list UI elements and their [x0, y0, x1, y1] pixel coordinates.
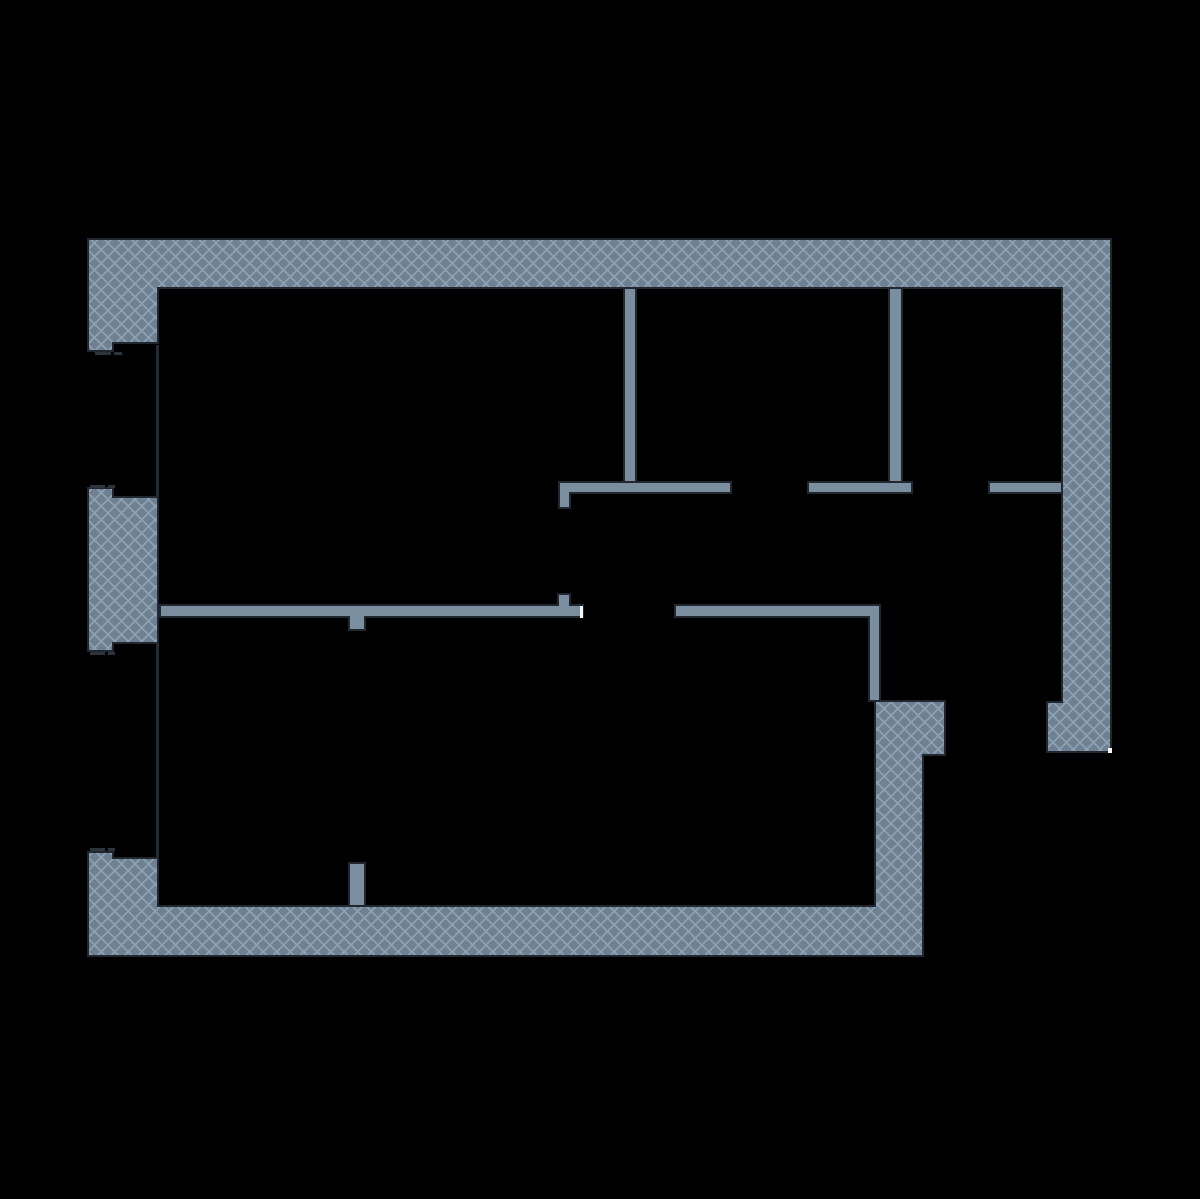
- floor-plan-svg: [0, 0, 1200, 1199]
- window-face-upper: [156, 345, 159, 497]
- window-dash: [108, 485, 115, 488]
- exterior-walls: [88, 239, 1111, 956]
- floor-plan: [0, 0, 1200, 1199]
- partition-lower-right: [675, 605, 880, 701]
- window-dash: [114, 352, 122, 355]
- window-dash: [95, 352, 111, 355]
- white-marks: [580, 606, 1112, 753]
- wall-exterior-left-middle-pier: [88, 488, 158, 651]
- interior-partitions: [160, 288, 1062, 906]
- window-dash: [108, 848, 115, 851]
- door-end-cap-mark: [580, 606, 583, 618]
- window-dash: [90, 652, 105, 655]
- window-dash: [90, 485, 105, 488]
- partition-bottom-door-stub: [349, 863, 365, 906]
- wall-exterior-top-right: [88, 239, 1111, 752]
- window-face-lower: [156, 643, 159, 858]
- wall-exterior-bottom: [88, 701, 945, 956]
- window-dash: [108, 652, 115, 655]
- partition-lower-left: [160, 594, 583, 630]
- window-dash: [90, 848, 105, 851]
- partition-upper-left: [559, 482, 731, 508]
- right-wall-bottom-tick: [1108, 748, 1112, 753]
- partition-upper-middle: [808, 482, 912, 493]
- partition-vertical-left: [624, 288, 636, 482]
- partition-upper-right: [989, 482, 1062, 493]
- partition-vertical-right: [889, 288, 902, 482]
